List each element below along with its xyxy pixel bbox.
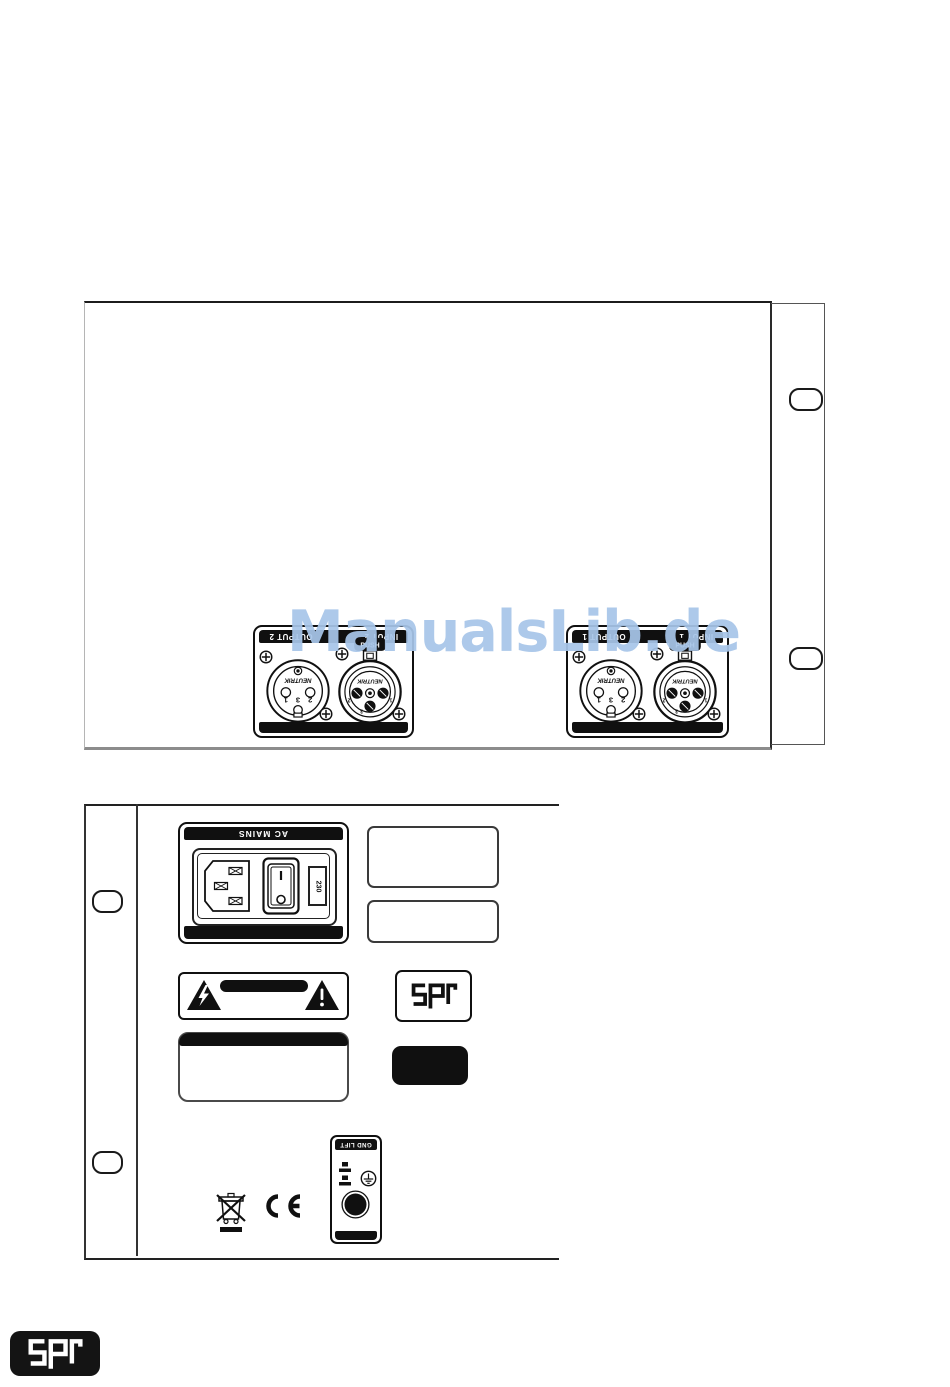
neutrik-brand-text: NEUTRIK — [671, 677, 697, 683]
pin-number: 1 — [704, 696, 707, 702]
neutrik-brand-text: NEUTRIK — [356, 677, 382, 683]
pin-number: 3 — [295, 695, 300, 704]
fuse-holder: 230 — [308, 866, 327, 906]
spl-logo — [26, 1335, 84, 1373]
screw-icon — [319, 707, 333, 721]
power-switch — [262, 857, 300, 915]
neutrik-brand-text: NEUTRIK — [284, 676, 312, 683]
pin-number: 2 — [348, 696, 351, 702]
rack-mount-hole — [92, 890, 123, 913]
rack-mount-hole — [789, 647, 823, 670]
manualslib-watermark: ManualsLib.de — [287, 599, 740, 665]
ac-mains-label: AC MAINS — [238, 829, 288, 839]
pin-number: 2 — [307, 695, 312, 704]
pin-number: 3 — [608, 695, 613, 704]
ac-mains-module: AC MAINS 230 — [178, 822, 349, 944]
pin-number: 1 — [596, 695, 601, 704]
ground-switch-position-icons — [337, 1161, 353, 1188]
ce-mark — [259, 1194, 303, 1218]
gnd-lift-label: GND LIFT — [340, 1141, 372, 1148]
manual-page: OUTPUT 2 INPUT 2 NEUTRIK 1 3 2 PUSH NE — [0, 0, 950, 1387]
rack-mount-hole — [789, 388, 823, 411]
rack-ear-right — [771, 303, 825, 745]
screw-icon — [392, 707, 406, 721]
blank-label-small — [367, 900, 499, 943]
black-label-box — [392, 1046, 468, 1085]
pin-number: 2 — [663, 696, 666, 702]
blank-label-with-header — [178, 1032, 349, 1102]
iec-power-inlet — [204, 860, 250, 912]
gnd-lift-header: GND LIFT — [335, 1139, 377, 1150]
pin-number: 3 — [360, 707, 363, 713]
safety-warning-label — [178, 972, 349, 1020]
neutrik-brand-text: NEUTRIK — [597, 676, 625, 683]
ac-mains-footer — [184, 926, 343, 939]
warning-text-bar — [220, 980, 308, 992]
exclamation-triangle-icon — [304, 979, 340, 1011]
plate-footer — [259, 722, 408, 733]
pin-number: 3 — [675, 707, 678, 713]
spl-footer-logo — [10, 1331, 100, 1376]
screw-icon — [632, 707, 646, 721]
rack-ear-left-divider — [136, 804, 138, 1256]
earth-ground-icon — [360, 1170, 377, 1187]
weee-crossed-bin-icon — [216, 1188, 246, 1234]
blank-label-large — [367, 826, 499, 888]
label-header-bar — [179, 1033, 348, 1046]
pin-number: 1 — [389, 696, 392, 702]
spl-logo — [409, 980, 459, 1012]
lightning-triangle-icon — [186, 979, 222, 1011]
screw-icon — [259, 650, 273, 664]
gnd-lift-push-button — [341, 1190, 370, 1219]
screw-icon — [707, 707, 721, 721]
fuse-rating: 230 — [314, 880, 321, 892]
plate-footer — [572, 722, 723, 733]
pin-number: 2 — [620, 695, 625, 704]
pin-number: 1 — [283, 695, 288, 704]
ac-mains-header: AC MAINS — [184, 827, 343, 840]
gnd-lift-footer — [335, 1231, 377, 1240]
spl-logo-badge — [395, 970, 472, 1022]
gnd-lift-plate: GND LIFT — [330, 1135, 382, 1244]
rack-mount-hole — [92, 1151, 123, 1174]
